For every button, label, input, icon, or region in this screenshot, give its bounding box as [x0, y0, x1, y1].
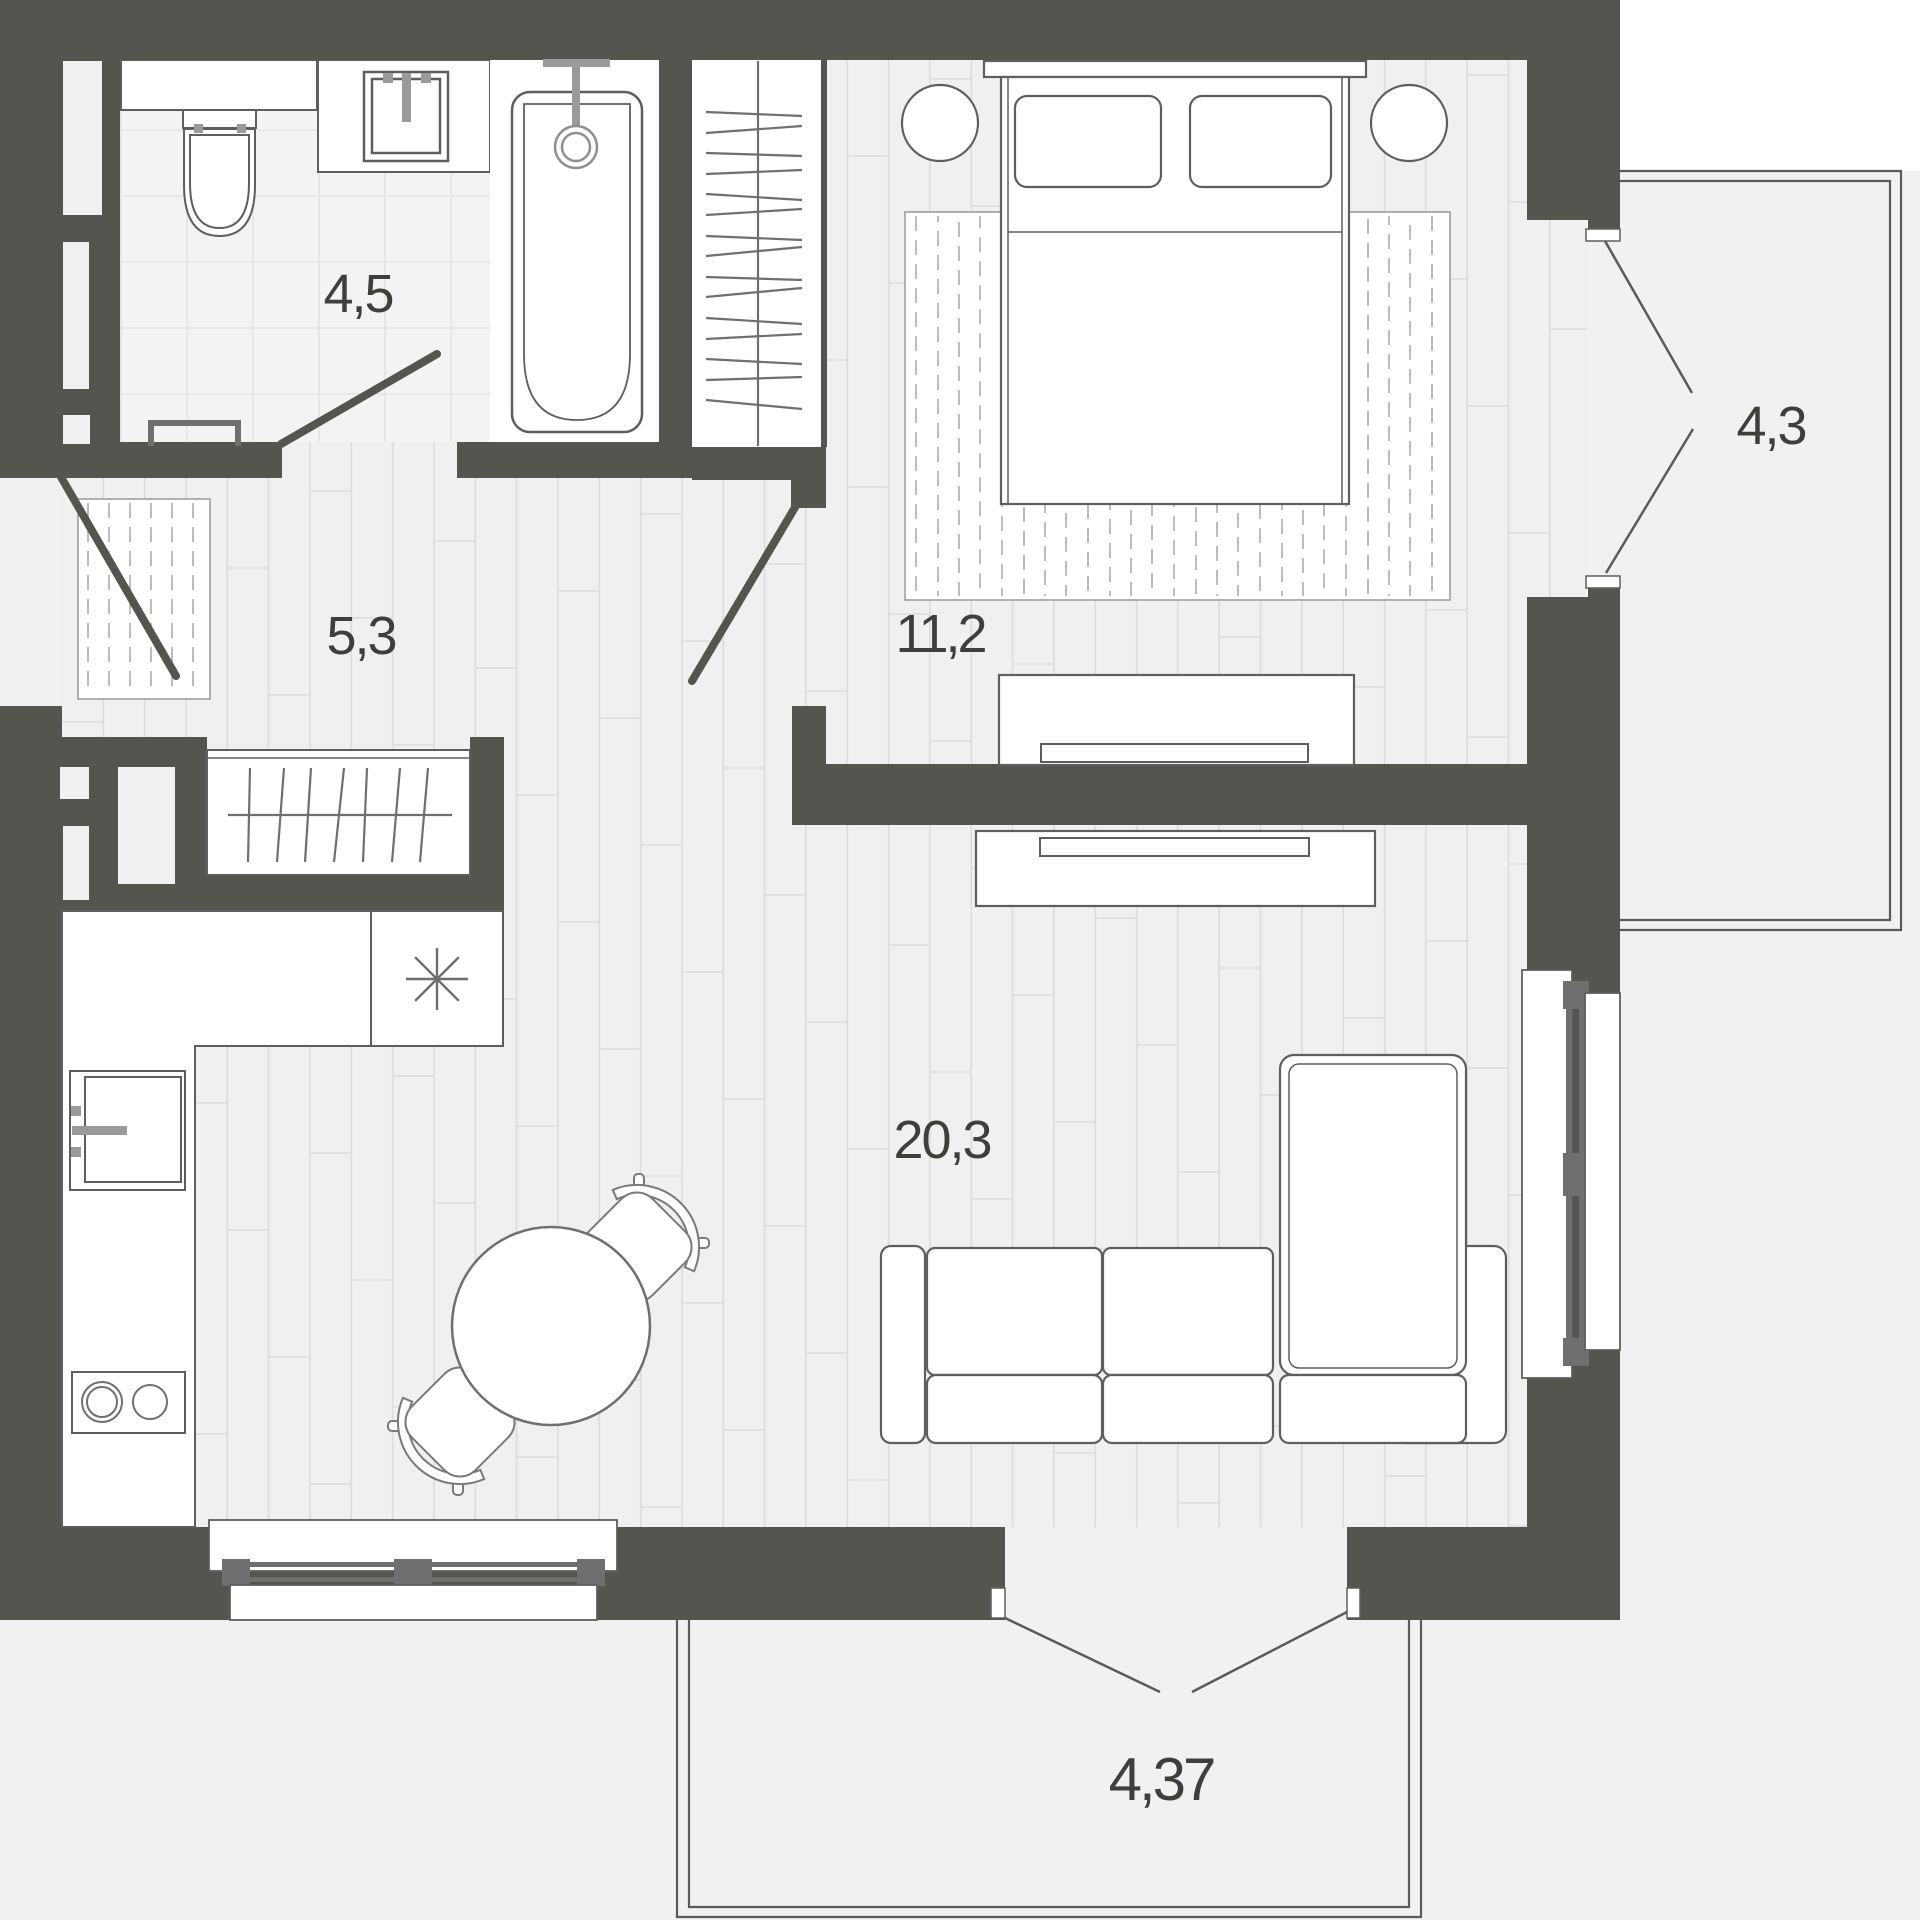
- svg-text:4,37: 4,37: [1109, 1746, 1214, 1813]
- svg-text:20,3: 20,3: [893, 1110, 990, 1170]
- svg-text:5,3: 5,3: [326, 606, 395, 666]
- svg-text:4,3: 4,3: [1736, 396, 1805, 456]
- svg-text:4,5: 4,5: [323, 264, 392, 324]
- svg-text:11,2: 11,2: [895, 604, 985, 664]
